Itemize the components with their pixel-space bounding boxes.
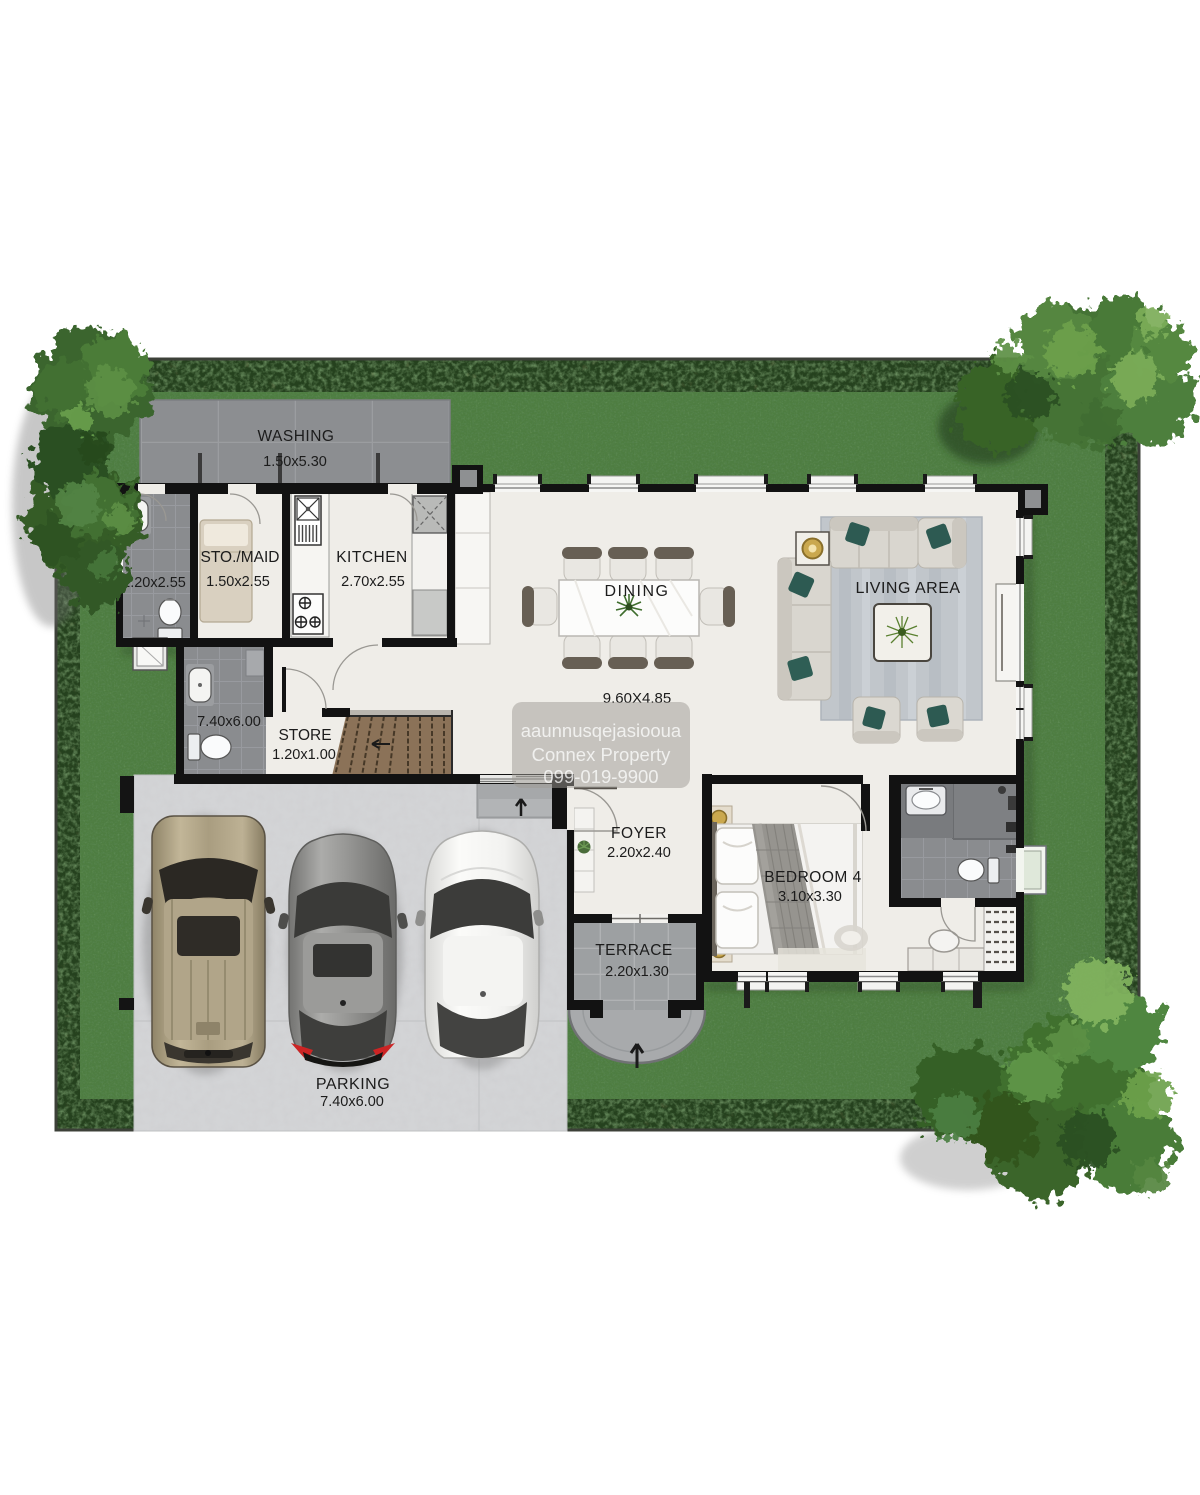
svg-text:2.70x2.55: 2.70x2.55: [341, 574, 405, 590]
svg-text:099-019-9900: 099-019-9900: [543, 766, 658, 787]
svg-text:PARKING: PARKING: [316, 1076, 390, 1093]
svg-text:1.20x1.00: 1.20x1.00: [272, 747, 336, 763]
svg-text:Connex Property: Connex Property: [532, 744, 672, 765]
svg-text:1.50x2.55: 1.50x2.55: [206, 574, 270, 590]
svg-text:LIVING AREA: LIVING AREA: [855, 580, 960, 597]
svg-text:1.50x5.30: 1.50x5.30: [263, 454, 327, 470]
svg-text:TERRACE: TERRACE: [595, 942, 673, 959]
svg-text:2.20x1.30: 2.20x1.30: [605, 964, 669, 980]
svg-text:2.20x2.40: 2.20x2.40: [607, 845, 671, 861]
svg-text:WASHING: WASHING: [258, 428, 335, 445]
svg-text:aaunnusqejasiooua: aaunnusqejasiooua: [521, 720, 682, 741]
svg-text:STO./MAID: STO./MAID: [201, 549, 280, 566]
svg-text:7.40x6.00: 7.40x6.00: [197, 714, 261, 730]
svg-text:BEDROOM 4: BEDROOM 4: [764, 869, 862, 886]
svg-text:FOYER: FOYER: [611, 825, 667, 842]
svg-text:STORE: STORE: [278, 727, 331, 744]
svg-text:3.10x3.30: 3.10x3.30: [778, 889, 842, 905]
svg-text:7.40x6.00: 7.40x6.00: [320, 1094, 384, 1110]
svg-text:DINING: DINING: [605, 583, 670, 600]
svg-text:KITCHEN: KITCHEN: [336, 549, 408, 566]
svg-text:1.20x2.55: 1.20x2.55: [122, 575, 186, 591]
